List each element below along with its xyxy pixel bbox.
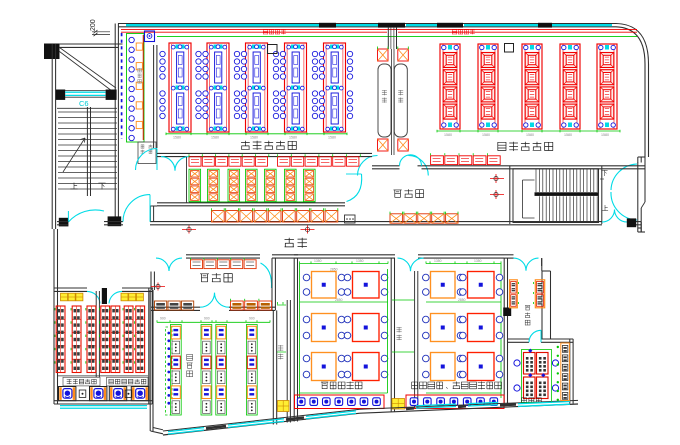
svg-text:900: 900 (249, 316, 255, 320)
svg-text:1580: 1580 (250, 136, 258, 140)
svg-text:1580: 1580 (482, 133, 490, 137)
svg-text:1350: 1350 (356, 259, 364, 263)
svg-text:1580: 1580 (328, 136, 336, 140)
svg-text:1580: 1580 (526, 133, 534, 137)
svg-text:1580: 1580 (289, 136, 297, 140)
svg-text:2850: 2850 (330, 267, 338, 271)
svg-text:C6: C6 (79, 99, 89, 108)
svg-text:900: 900 (204, 316, 210, 320)
svg-text:1580: 1580 (444, 133, 452, 137)
svg-text:1350: 1350 (314, 259, 322, 263)
svg-text:1580: 1580 (601, 133, 609, 137)
svg-text:1350: 1350 (474, 259, 482, 263)
svg-text:1580: 1580 (564, 133, 572, 137)
svg-text:200: 200 (90, 19, 97, 31)
svg-text:900: 900 (160, 316, 166, 320)
svg-text:2850: 2850 (458, 298, 466, 302)
svg-text:2850: 2850 (335, 298, 343, 302)
svg-text:1350: 1350 (434, 259, 442, 263)
svg-text:1580: 1580 (211, 136, 219, 140)
svg-text:1580: 1580 (173, 136, 181, 140)
